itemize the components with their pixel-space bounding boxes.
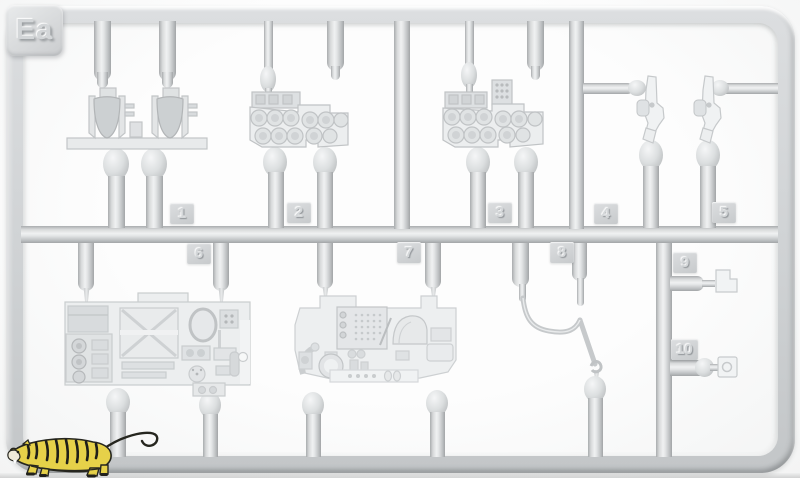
part-number-tag: 10 bbox=[671, 339, 698, 360]
molded-part-6 bbox=[65, 293, 250, 396]
tiger-logo-watermark bbox=[8, 433, 157, 478]
molded-part-7 bbox=[295, 296, 456, 382]
part-number-tag: 1 bbox=[170, 203, 194, 224]
molded-part-9 bbox=[716, 270, 737, 292]
part-number-tag: 3 bbox=[488, 202, 512, 223]
photo-bottom-edge bbox=[0, 473, 800, 478]
molded-part-2 bbox=[250, 92, 348, 147]
sprue-code-tab: Ea bbox=[6, 5, 63, 56]
molded-part-4 bbox=[637, 76, 664, 143]
molded-part-5 bbox=[694, 76, 721, 143]
part-number-tag: 4 bbox=[594, 203, 618, 224]
molded-part-10 bbox=[718, 357, 737, 377]
part-number-tag: 6 bbox=[187, 243, 211, 264]
part-number-tag: 9 bbox=[673, 252, 697, 273]
sprue-photo: 1 2 3 4 5 6 7 8 9 10 Ea bbox=[0, 0, 800, 478]
molded-part-1 bbox=[67, 88, 207, 149]
sprue-code-label: Ea bbox=[16, 14, 53, 47]
part-number-tag: 5 bbox=[712, 202, 736, 223]
molded-parts bbox=[0, 0, 800, 478]
tiger-tail bbox=[102, 433, 157, 450]
part-number-tag: 8 bbox=[550, 242, 574, 263]
part-number-tag: 7 bbox=[397, 242, 421, 263]
part-number-tag: 2 bbox=[287, 202, 311, 223]
molded-part-8 bbox=[523, 298, 601, 372]
molded-part-3 bbox=[443, 80, 543, 147]
